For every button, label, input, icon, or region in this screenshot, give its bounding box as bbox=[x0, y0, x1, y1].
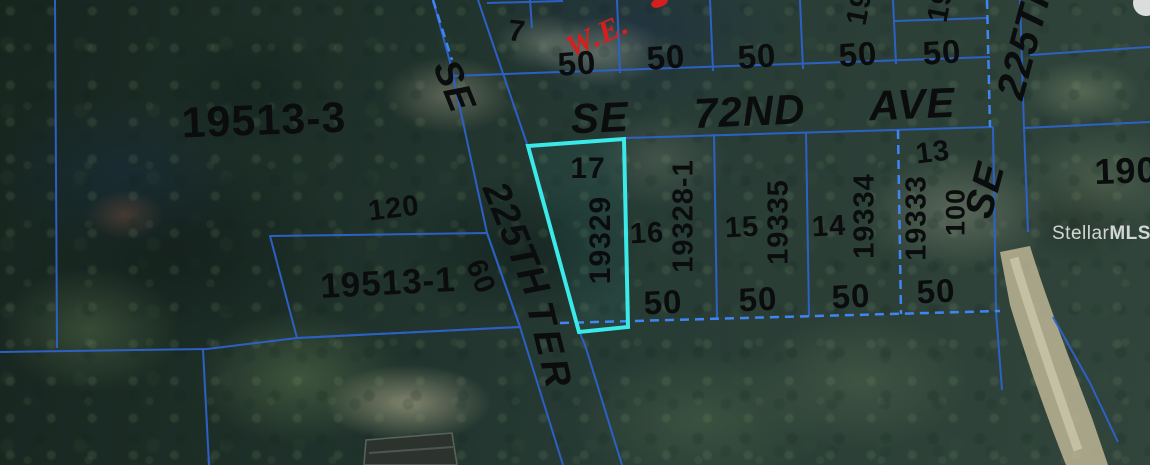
parcel-map-aerial: 19513-3 19513-1 7 W.E. 50 50 50 50 50 19… bbox=[0, 0, 1150, 465]
parcel-id-19335: 19335 bbox=[765, 179, 794, 265]
mls-watermark-suffix: MLS bbox=[1109, 223, 1150, 244]
parcel-id-19334: 19334 bbox=[851, 173, 880, 259]
dimension-label: 50 bbox=[643, 285, 683, 320]
dimension-label: 50 bbox=[838, 36, 879, 72]
dimension-label: 50 bbox=[737, 38, 778, 74]
parcel-id-19328-1: 19328-1 bbox=[670, 159, 699, 272]
lot-number-16: 16 bbox=[629, 219, 665, 250]
mls-watermark-brand: Stellar bbox=[1052, 223, 1109, 244]
mls-watermark: StellarMLS bbox=[1052, 223, 1150, 245]
lot-number-14: 14 bbox=[811, 212, 847, 243]
parcel-id-19329: 19329 bbox=[586, 196, 616, 284]
dirt-road-shape bbox=[1000, 246, 1108, 465]
parcel-label-region-west: 19513-3 bbox=[181, 97, 347, 146]
dimension-label: 50 bbox=[922, 34, 963, 70]
parcel-label-region-southwest: 19513-1 bbox=[319, 262, 456, 304]
dimension-label: 50 bbox=[646, 39, 687, 75]
parcel-id-19333: 19333 bbox=[903, 175, 932, 261]
dimension-label: 50 bbox=[557, 45, 598, 81]
dimension-label-west-depth: 120 bbox=[367, 191, 422, 226]
lot-number-7: 7 bbox=[507, 16, 528, 48]
dimension-label: 50 bbox=[738, 282, 778, 317]
lot-number-17: 17 bbox=[570, 154, 605, 184]
building-roof-shape bbox=[364, 433, 457, 465]
lot-number-13: 13 bbox=[914, 137, 952, 170]
partial-parcel-label-right: 190 bbox=[1094, 152, 1150, 190]
dimension-label-lot13-depth: 100 bbox=[943, 188, 970, 236]
dimension-label: 50 bbox=[831, 279, 871, 314]
dimension-label: 50 bbox=[916, 274, 956, 309]
lot-number-15: 15 bbox=[724, 213, 760, 244]
